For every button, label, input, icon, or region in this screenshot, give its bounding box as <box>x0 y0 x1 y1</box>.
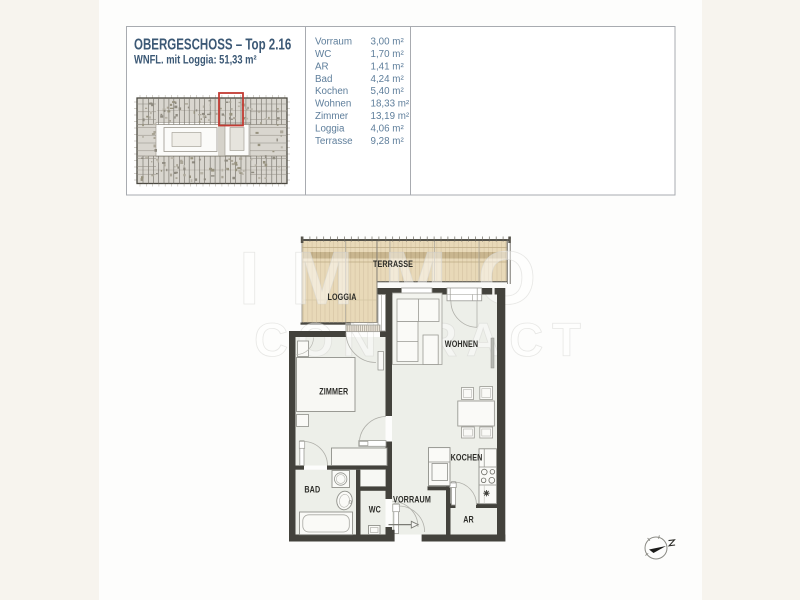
svg-text:WC: WC <box>369 505 381 515</box>
svg-text:WOHNEN: WOHNEN <box>445 339 478 349</box>
svg-text:AR: AR <box>463 515 474 525</box>
svg-text:KOCHEN: KOCHEN <box>451 453 483 463</box>
svg-text:1,70 m²: 1,70 m² <box>371 49 405 60</box>
svg-text:Wohnen: Wohnen <box>315 99 351 110</box>
svg-text:VORRAUM: VORRAUM <box>393 495 431 505</box>
svg-text:Kochen: Kochen <box>315 86 348 97</box>
svg-text:WNFL. mit Loggia: 51,33 m²: WNFL. mit Loggia: 51,33 m² <box>134 53 257 66</box>
svg-text:Vorraum: Vorraum <box>315 37 352 48</box>
svg-text:3,00 m²: 3,00 m² <box>371 37 405 48</box>
svg-text:LOGGIA: LOGGIA <box>327 292 356 302</box>
svg-text:ZIMMER: ZIMMER <box>319 387 348 397</box>
svg-text:18,33 m²: 18,33 m² <box>371 99 410 110</box>
svg-text:WC: WC <box>315 49 331 60</box>
svg-text:1,41 m²: 1,41 m² <box>371 61 405 72</box>
svg-text:13,19 m²: 13,19 m² <box>371 111 410 122</box>
svg-text:BAD: BAD <box>304 485 320 495</box>
svg-text:4,24 m²: 4,24 m² <box>371 74 405 85</box>
svg-text:Bad: Bad <box>315 74 332 85</box>
svg-text:Loggia: Loggia <box>315 123 345 134</box>
svg-text:OBERGESCHOSS – Top 2.16: OBERGESCHOSS – Top 2.16 <box>134 35 291 53</box>
svg-text:Terrasse: Terrasse <box>315 136 353 147</box>
svg-text:TERRASSE: TERRASSE <box>373 259 413 269</box>
svg-text:9,28 m²: 9,28 m² <box>371 136 405 147</box>
svg-text:4,06 m²: 4,06 m² <box>371 123 405 134</box>
svg-text:Zimmer: Zimmer <box>315 111 349 122</box>
svg-text:5,40 m²: 5,40 m² <box>371 86 405 97</box>
svg-text:AR: AR <box>315 61 329 72</box>
